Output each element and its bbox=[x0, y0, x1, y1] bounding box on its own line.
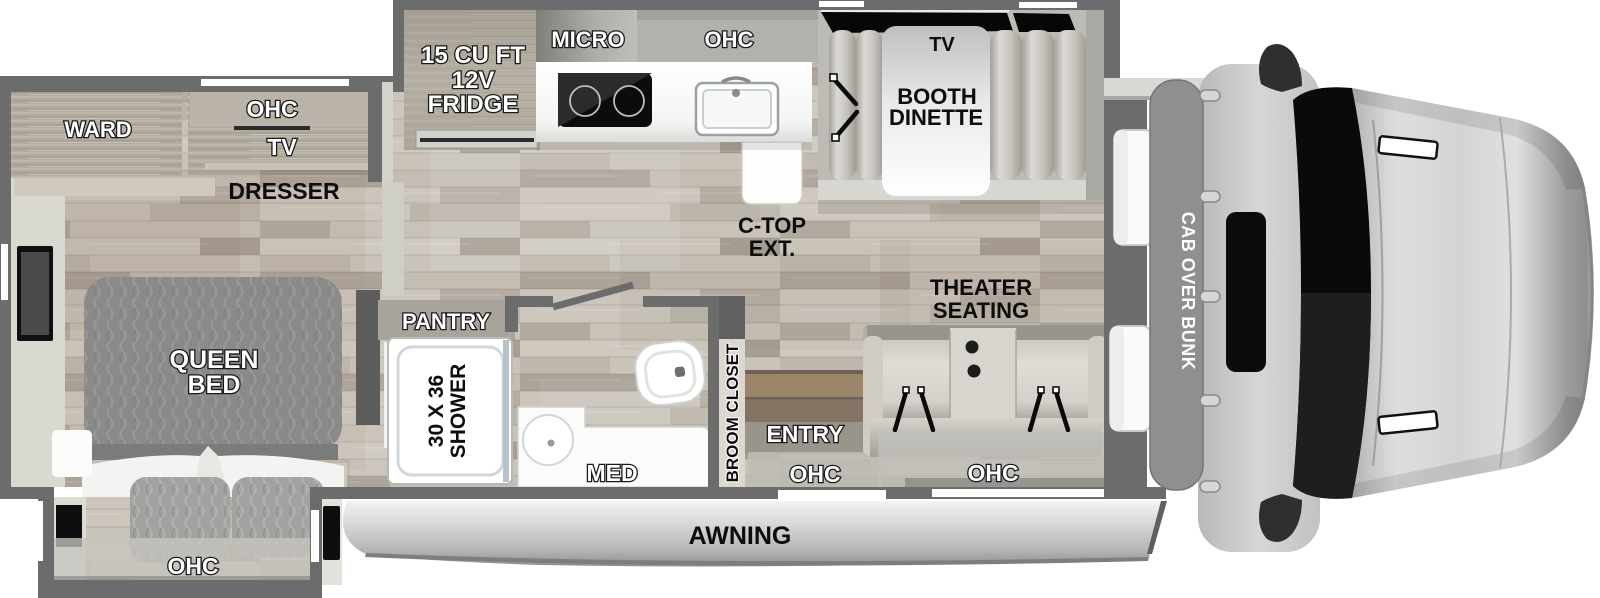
svg-text:SHOWER: SHOWER bbox=[447, 364, 470, 459]
svg-text:30 X 36: 30 X 36 bbox=[425, 375, 448, 447]
svg-text:OHC: OHC bbox=[967, 460, 1018, 486]
svg-text:OHC: OHC bbox=[167, 553, 218, 579]
svg-text:C-TOP: C-TOP bbox=[738, 213, 806, 238]
svg-text:15 CU FT: 15 CU FT bbox=[421, 42, 525, 69]
svg-text:TV: TV bbox=[929, 34, 955, 56]
svg-text:OHC: OHC bbox=[789, 461, 840, 487]
svg-text:EXT.: EXT. bbox=[749, 236, 795, 261]
svg-text:DINETTE: DINETTE bbox=[889, 105, 983, 130]
svg-text:BROOM CLOSET: BROOM CLOSET bbox=[723, 343, 742, 482]
svg-text:PANTRY: PANTRY bbox=[402, 309, 490, 334]
svg-text:ENTRY: ENTRY bbox=[766, 421, 843, 447]
svg-text:FRIDGE: FRIDGE bbox=[428, 91, 519, 118]
svg-text:CAB OVER BUNK: CAB OVER BUNK bbox=[1178, 212, 1198, 371]
svg-text:THEATER: THEATER bbox=[930, 275, 1032, 300]
svg-text:OHC: OHC bbox=[246, 96, 297, 122]
svg-text:MICRO: MICRO bbox=[551, 27, 624, 52]
svg-text:DRESSER: DRESSER bbox=[228, 178, 340, 204]
svg-text:MED: MED bbox=[586, 460, 637, 486]
svg-text:TV: TV bbox=[267, 134, 297, 160]
svg-text:BED: BED bbox=[188, 371, 241, 399]
svg-text:OHC: OHC bbox=[705, 27, 754, 52]
svg-text:WARD: WARD bbox=[64, 117, 131, 142]
svg-text:AWNING: AWNING bbox=[689, 522, 792, 550]
svg-text:SEATING: SEATING bbox=[933, 298, 1029, 323]
svg-text:12V: 12V bbox=[452, 67, 495, 94]
svg-text:QUEEN: QUEEN bbox=[170, 346, 259, 374]
